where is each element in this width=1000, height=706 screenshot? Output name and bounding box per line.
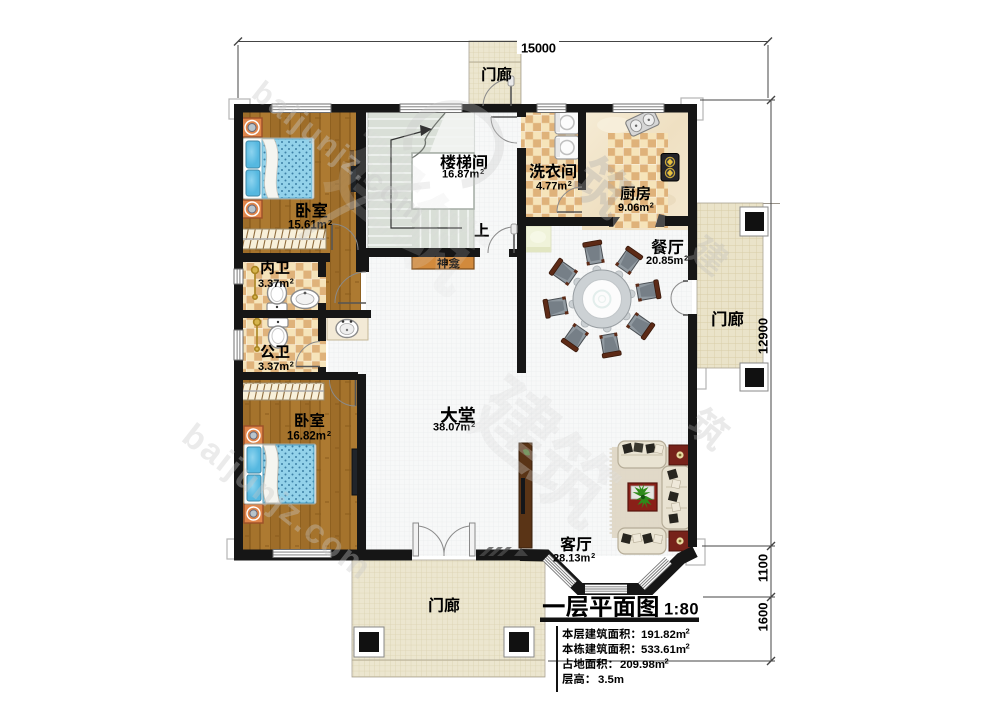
svg-text:9.06m: 9.06m — [618, 202, 649, 214]
svg-text:3.37m: 3.37m — [258, 361, 289, 373]
svg-text:2: 2 — [650, 201, 654, 210]
svg-text:16.82m: 16.82m — [287, 431, 326, 443]
svg-text:3.37m: 3.37m — [258, 278, 289, 290]
svg-text:15000: 15000 — [521, 41, 556, 56]
svg-text:2: 2 — [686, 642, 690, 651]
svg-text:20.85m: 20.85m — [646, 255, 684, 267]
svg-text:4.77m: 4.77m — [536, 181, 567, 193]
svg-text:2: 2 — [568, 179, 572, 188]
svg-text:38.07m: 38.07m — [433, 422, 471, 434]
svg-text:3.5m: 3.5m — [598, 674, 624, 686]
svg-text:12900: 12900 — [756, 318, 771, 354]
svg-text:209.98m: 209.98m — [620, 659, 665, 671]
svg-text:1:80: 1:80 — [664, 601, 699, 619]
svg-text:2: 2 — [686, 627, 690, 636]
svg-text:2: 2 — [290, 360, 294, 369]
svg-text:1600: 1600 — [756, 603, 771, 632]
svg-text:2: 2 — [591, 551, 595, 560]
svg-text:191.82m: 191.82m — [641, 629, 686, 641]
svg-text:533.61m: 533.61m — [641, 644, 686, 656]
svg-text:1100: 1100 — [756, 554, 771, 582]
svg-text:2: 2 — [684, 254, 688, 263]
svg-text:2: 2 — [327, 429, 331, 438]
svg-text:28.13m: 28.13m — [553, 553, 591, 565]
svg-text:2: 2 — [665, 657, 669, 666]
svg-text:2: 2 — [290, 277, 294, 286]
